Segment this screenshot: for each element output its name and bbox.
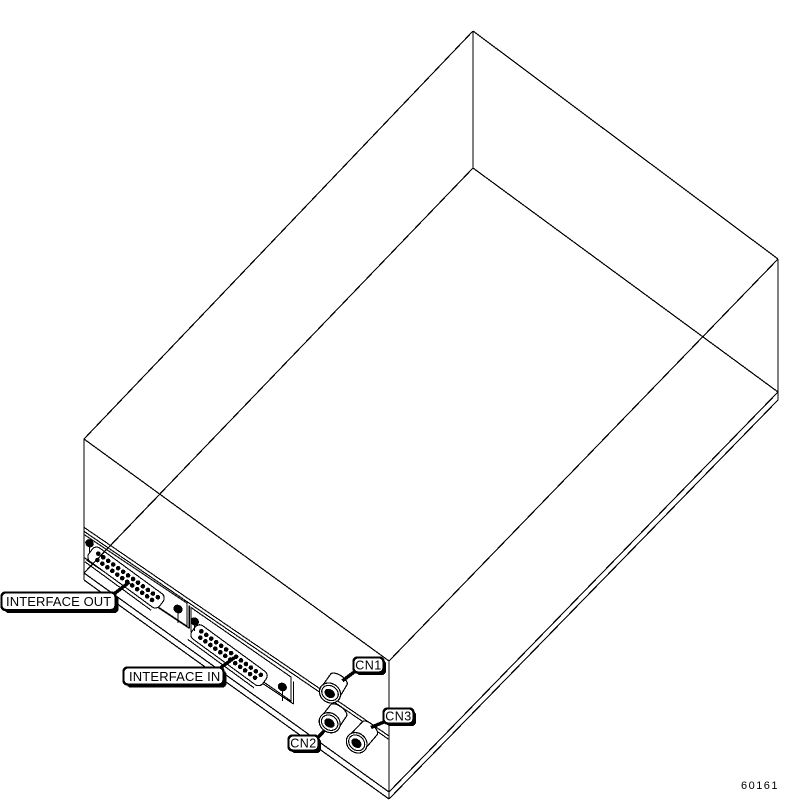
svg-text:CN1: CN1 [355, 659, 382, 673]
svg-text:60161: 60161 [741, 780, 779, 792]
svg-text:INTERFACE OUT: INTERFACE OUT [6, 594, 111, 609]
svg-text:CN2: CN2 [290, 737, 317, 751]
svg-text:INTERFACE IN: INTERFACE IN [129, 669, 220, 684]
svg-text:CN3: CN3 [385, 710, 412, 724]
